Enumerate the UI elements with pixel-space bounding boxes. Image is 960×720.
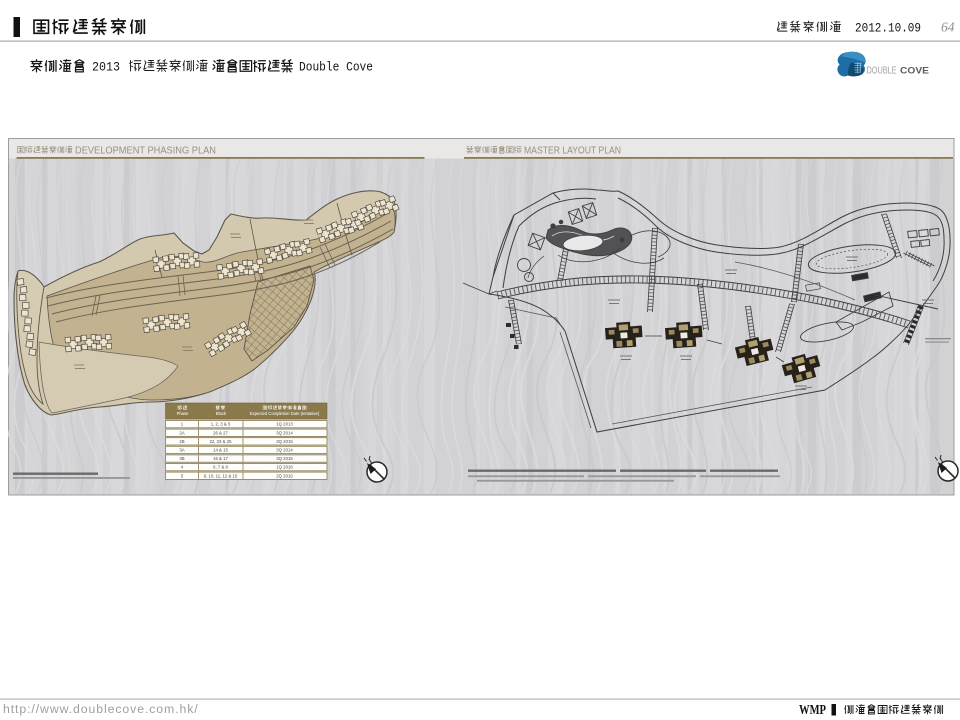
svg-text:22, 23 & 25: 22, 23 & 25: [210, 439, 233, 444]
svg-text:3A: 3A: [179, 448, 184, 453]
svg-text:3Q 2015: 3Q 2015: [276, 456, 293, 461]
svg-text:2A: 2A: [179, 430, 184, 435]
svg-text:2012.10.09: 2012.10.09: [855, 21, 921, 36]
svg-text:MASTER LAYOUT PLAN: MASTER LAYOUT PLAN: [524, 146, 621, 157]
svg-text:http://www.doublecove.com.hk/: http://www.doublecove.com.hk/: [3, 702, 199, 716]
svg-text:3B: 3B: [179, 456, 184, 461]
svg-text:3Q 2015: 3Q 2015: [276, 439, 293, 444]
svg-text:2B: 2B: [179, 439, 184, 444]
svg-text:3Q 2014: 3Q 2014: [276, 448, 293, 453]
svg-text:1, 2, 3 & 5: 1, 2, 3 & 5: [211, 422, 231, 427]
svg-text:1Q 2013: 1Q 2013: [276, 422, 293, 427]
svg-text:14 & 15: 14 & 15: [213, 448, 228, 453]
svg-text:9, 10, 11, 12 & 15: 9, 10, 11, 12 & 15: [204, 473, 238, 478]
svg-text:16 & 17: 16 & 17: [213, 456, 228, 461]
svg-text:DEVELOPMENT PHASING PLAN: DEVELOPMENT PHASING PLAN: [75, 146, 216, 157]
svg-text:Block: Block: [216, 411, 227, 416]
svg-text:1Q 2016: 1Q 2016: [276, 465, 293, 470]
svg-text:6, 7 & 8: 6, 7 & 8: [213, 465, 228, 470]
svg-text:WMP: WMP: [799, 702, 826, 717]
svg-text:2013: 2013: [92, 61, 120, 75]
svg-text:3Q 2014: 3Q 2014: [276, 430, 293, 435]
svg-text:26 & 27: 26 & 27: [213, 430, 228, 435]
svg-text:COVE: COVE: [900, 66, 929, 77]
svg-text:Phase: Phase: [177, 411, 190, 416]
svg-text:2Q 2016: 2Q 2016: [276, 473, 293, 478]
svg-text:Double Cove: Double Cove: [299, 61, 373, 75]
svg-text:Expected Completion Date (tent: Expected Completion Date (tentative): [250, 411, 320, 416]
svg-text:64: 64: [941, 20, 955, 35]
svg-text:DOUBLE: DOUBLE: [867, 66, 897, 77]
